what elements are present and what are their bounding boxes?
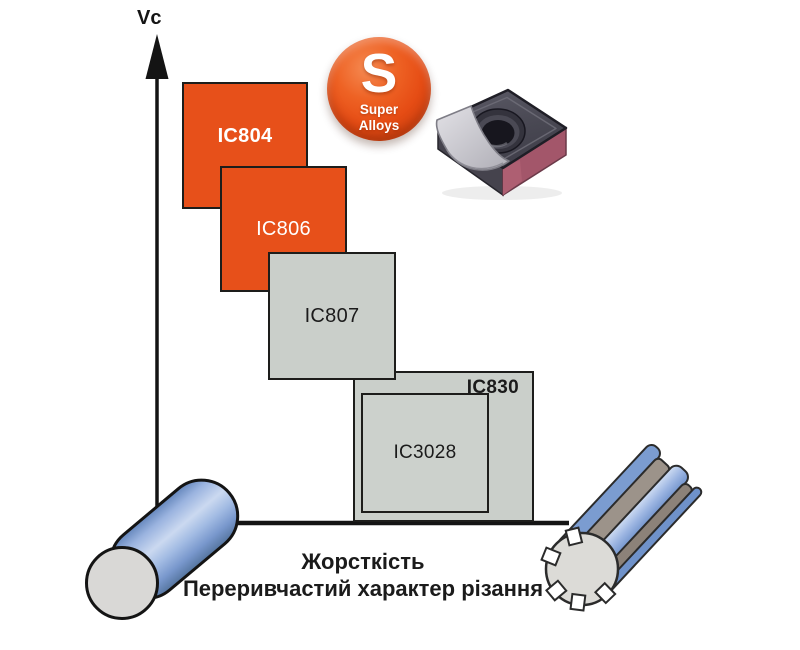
carbide-insert-icon	[437, 90, 566, 200]
grade-label-ic806: IC806	[256, 218, 311, 241]
diagram-canvas: IC804 IC806 IC807 IC830 IC3028 Vc Жорстк…	[0, 0, 800, 650]
grade-label-ic807: IC807	[305, 305, 360, 328]
x-axis-caption-line2: Переривчастий характер різання	[163, 575, 563, 602]
splined-shaft-icon	[542, 441, 706, 611]
super-alloys-badge-icon: S Super Alloys	[327, 37, 431, 141]
x-axis-caption-line1: Жорсткість	[163, 548, 563, 575]
badge-text-line2: Alloys	[359, 118, 400, 133]
badge-letter: S	[361, 46, 398, 101]
y-axis-arrow-icon	[146, 34, 169, 79]
grade-label-ic804: IC804	[218, 125, 273, 148]
badge-text-line1: Super	[360, 102, 398, 117]
grade-region-ic807: IC807	[268, 252, 396, 380]
y-axis-label: Vc	[137, 7, 177, 30]
grade-region-ic3028: IC3028	[361, 393, 489, 513]
x-axis-caption: Жорсткість Переривчастий характер різанн…	[163, 548, 563, 602]
grade-label-ic3028: IC3028	[393, 442, 456, 464]
